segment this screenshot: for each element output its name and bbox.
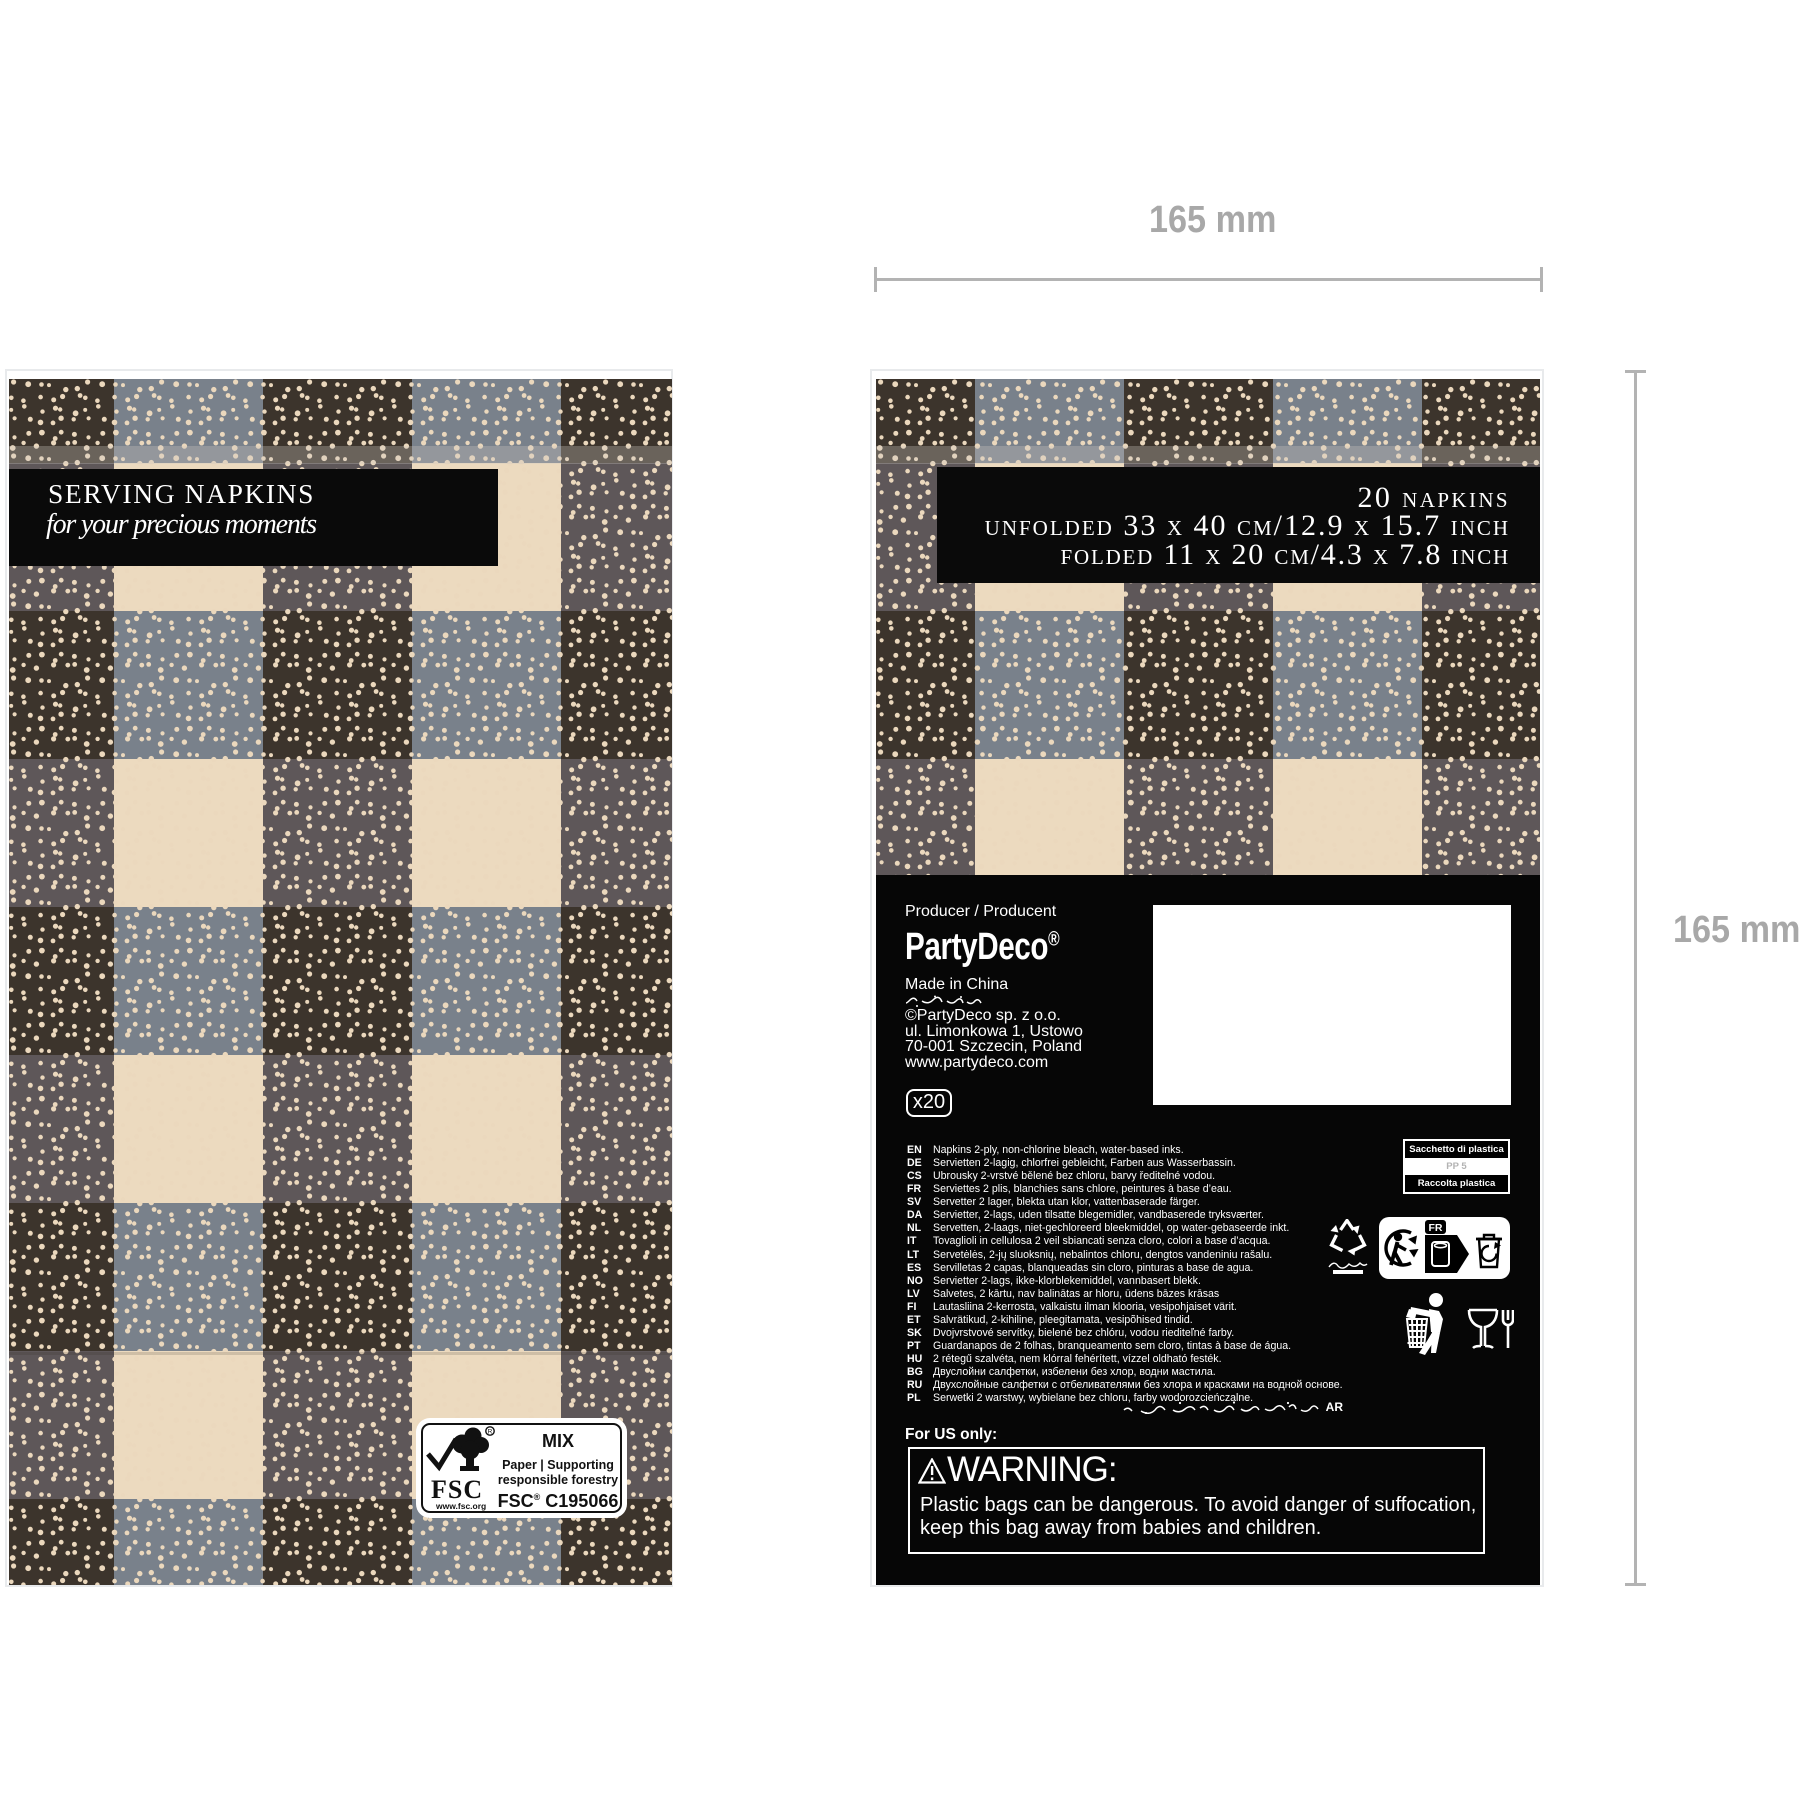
- svg-text:FR: FR: [1429, 1222, 1443, 1234]
